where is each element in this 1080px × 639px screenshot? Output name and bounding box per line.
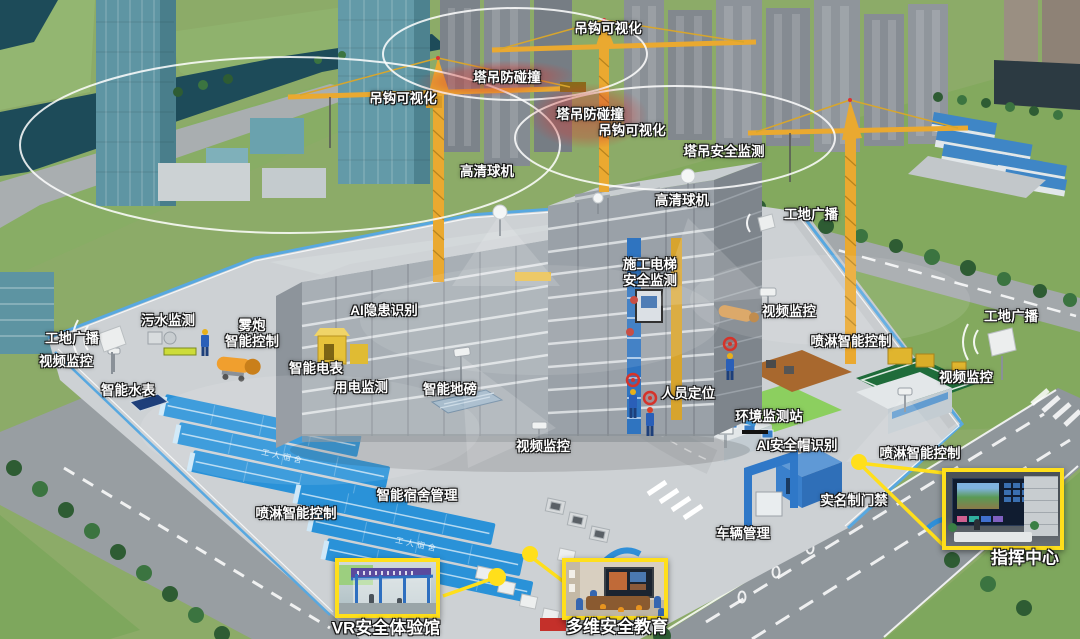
caption-safety-education: 多维安全教育 bbox=[566, 613, 668, 638]
inset-safety-education bbox=[562, 558, 668, 620]
connector-dot-command bbox=[851, 454, 867, 470]
edu-poster bbox=[569, 570, 575, 578]
caption-command-center: 指挥中心 bbox=[991, 544, 1059, 569]
edu-photo bbox=[566, 562, 664, 616]
connector-dot-education bbox=[522, 546, 538, 562]
vr-photo bbox=[339, 562, 436, 614]
edu-poster bbox=[569, 584, 575, 592]
collision-zone-2 bbox=[528, 83, 648, 149]
caption-vr-experience-hall: VR安全体验馆 bbox=[332, 614, 441, 639]
edu-helmet bbox=[618, 607, 624, 612]
connector-dot-vr bbox=[488, 568, 506, 586]
site-3d-render: 工人宿舍 工人宿舍 bbox=[0, 0, 1080, 639]
command-right-wall bbox=[1024, 476, 1058, 536]
smart-construction-site-overview: 工人宿舍 工人宿舍 bbox=[0, 0, 1080, 639]
edu-helmet bbox=[600, 604, 606, 609]
plant bbox=[1030, 521, 1039, 530]
operator bbox=[974, 519, 980, 530]
plant bbox=[948, 523, 957, 532]
inset-command-center bbox=[942, 468, 1064, 550]
video-wall-main-screen bbox=[957, 483, 999, 509]
edu-trainee bbox=[654, 596, 661, 608]
inset-vr-experience-hall bbox=[335, 558, 440, 618]
edu-trainee bbox=[576, 598, 583, 610]
vr-floor bbox=[339, 603, 436, 614]
console-desk bbox=[954, 532, 1032, 542]
video-wall bbox=[952, 478, 1034, 526]
command-room-photo bbox=[946, 472, 1060, 546]
edu-screen bbox=[604, 567, 654, 598]
edu-helmet bbox=[636, 605, 642, 610]
